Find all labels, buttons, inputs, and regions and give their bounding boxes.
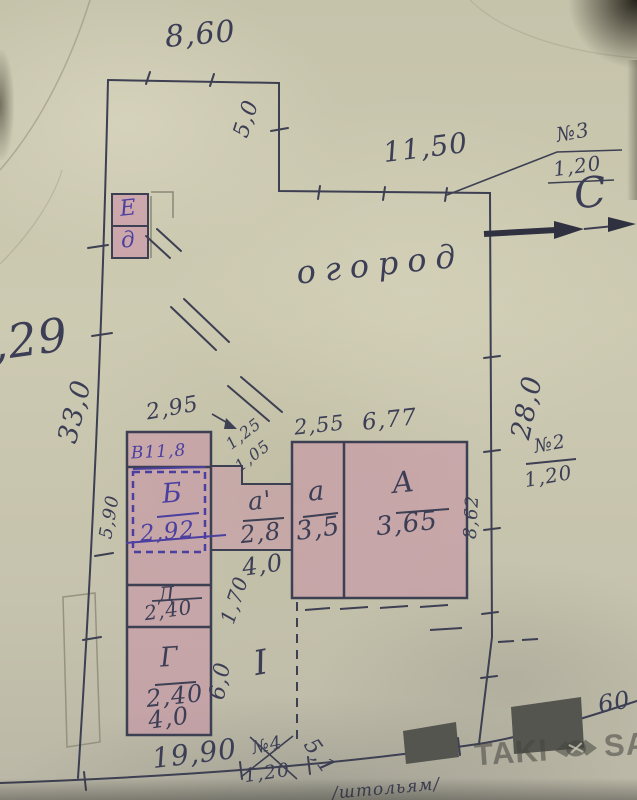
room-A-value: 3,65 bbox=[375, 508, 439, 540]
gate3-number: №3 bbox=[555, 119, 592, 145]
room-g-label: Г bbox=[159, 643, 180, 671]
partial-number-left: ,29 bbox=[0, 311, 71, 367]
dim-house-top-right: 6,77 bbox=[361, 406, 418, 435]
north-arrow-icon bbox=[484, 217, 636, 239]
building-v-label: В11,8 bbox=[131, 443, 187, 463]
dim-house-right: 8,62 bbox=[462, 495, 482, 540]
north-label: С bbox=[572, 170, 609, 215]
shed-bottom-label: д bbox=[120, 229, 137, 252]
handshake-icon bbox=[552, 731, 600, 766]
dim-house-top-left: 2,55 bbox=[293, 412, 346, 438]
dim-top: 8,60 bbox=[164, 17, 237, 53]
shed-pencil-marks bbox=[151, 192, 173, 258]
room-a-label: а bbox=[307, 477, 326, 505]
dim-garage-bottom: 4,0 bbox=[147, 703, 191, 732]
room-a1-value: 2,8 bbox=[239, 519, 282, 547]
gate2-number: №2 bbox=[533, 432, 568, 456]
watermark-left-text: TAKI bbox=[473, 732, 549, 773]
room-a1-label: а' bbox=[247, 487, 273, 514]
room-a-value: 3,5 bbox=[294, 513, 342, 545]
room-b-label: Б bbox=[161, 479, 184, 508]
partial-number-right: 60 bbox=[596, 687, 632, 716]
shed-top-label: Е bbox=[119, 197, 138, 221]
room-d-value: 2,40 bbox=[143, 597, 194, 624]
path-dashes bbox=[146, 229, 282, 421]
scanned-plan-sheet: 8,60 5,0 11,50 №3 1,20 С огород ,29 33,0… bbox=[0, 0, 637, 800]
yard-dashes bbox=[297, 602, 538, 745]
dim-annex-bottom: 4,0 bbox=[241, 550, 285, 579]
room-b-value: 2,92 bbox=[139, 519, 196, 547]
room-A-label: А bbox=[391, 467, 417, 498]
watermark-right-text: SALE bbox=[603, 722, 637, 764]
